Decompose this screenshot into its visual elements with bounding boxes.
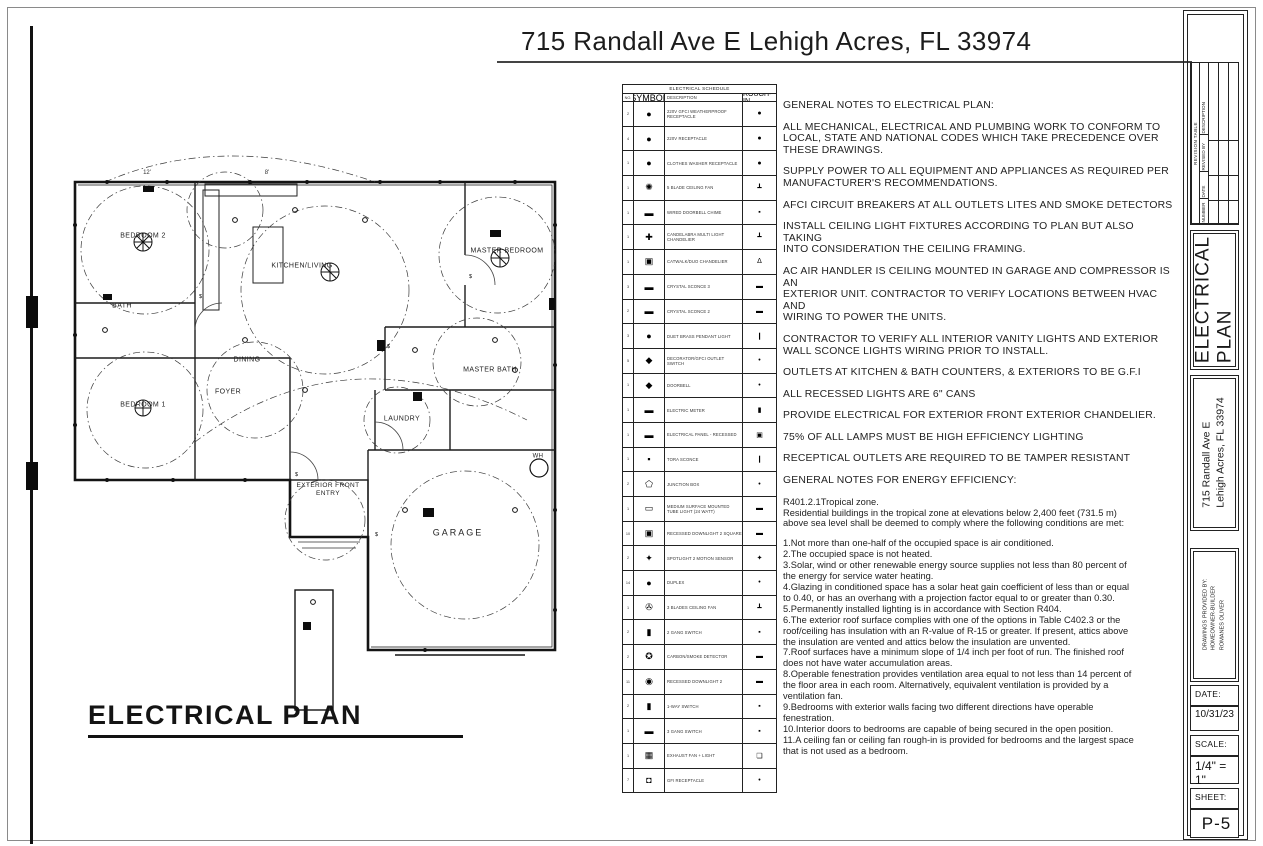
schedule-qty: 2 <box>623 102 633 126</box>
rough-in-symbol-icon: ❙ <box>742 448 776 472</box>
fixture-symbol-icon: ● <box>633 571 664 595</box>
room-label: LAUNDRY <box>384 416 420 425</box>
rough-in-symbol-icon: ▬ <box>742 497 776 521</box>
plan-heading: ELECTRICAL PLAN <box>88 700 463 738</box>
room-label: EXTERIOR FRONT ENTRY <box>296 482 359 498</box>
fixture-symbol-icon: ● <box>633 102 664 126</box>
plan-left-marker <box>26 296 38 328</box>
fixture-symbol-icon: ✦ <box>633 546 664 570</box>
schedule-col-rough: ROUGH-IN <box>742 94 776 101</box>
scale-label: SCALE: <box>1190 735 1239 756</box>
fixture-symbol-icon: ▬ <box>633 719 664 743</box>
provided-by: DRAWINGS PROVIDED BY: HOMEOWNER-BUILDER … <box>1190 548 1239 682</box>
energy-note-paragraph: R401.2.1Tropical zone. Residential build… <box>783 497 1175 530</box>
energy-note-paragraph: 1.Not more than one-half of the occupied… <box>783 538 1175 756</box>
schedule-qty: 1 <box>623 423 633 447</box>
fixture-description: SPOTLIGHT 2 MOTION SENSOR <box>664 546 742 570</box>
fixture-symbol-icon: ◘ <box>633 769 664 793</box>
rough-in-symbol-icon: ▮ <box>742 398 776 422</box>
rough-in-symbol-icon: ✦ <box>742 546 776 570</box>
schedule-row: 1 ▬ ELECTRIC METER ▮ <box>623 398 776 423</box>
rough-in-symbol-icon: ▪ <box>742 620 776 644</box>
fixture-description: 2 GANG SWITCH <box>664 620 742 644</box>
fixture-symbol-icon: ● <box>633 127 664 151</box>
room-label: MASTER BATH <box>463 367 517 376</box>
room-label: BEDROOM 2 <box>120 233 166 242</box>
sheet-number-label: SHEET: <box>1190 788 1239 809</box>
schedule-row: 1 ✇ 3 BLADES CEILING FAN ┻ <box>623 596 776 621</box>
dimension-label: 8' <box>265 170 269 176</box>
fixture-symbol-icon: ▪ <box>633 448 664 472</box>
fixture-symbol-icon: ▦ <box>633 744 664 768</box>
fixture-description: JUNCTION BOX <box>664 472 742 496</box>
schedule-row: 2 ✦ SPOTLIGHT 2 MOTION SENSOR ✦ <box>623 546 776 571</box>
rough-in-symbol-icon: ▬ <box>742 300 776 324</box>
schedule-col-desc: DESCRIPTION <box>664 94 742 101</box>
rough-in-symbol-icon: ❏ <box>742 744 776 768</box>
note-paragraph: AFCI CIRCUIT BREAKERS AT ALL OUTLETS LIT… <box>783 200 1175 212</box>
fixture-description: 220V GFCI WEATHERPROOF RECEPTACLE <box>664 102 742 126</box>
fixture-description: WIRED DOORBELL CHIME <box>664 201 742 225</box>
rough-in-symbol-icon: • <box>742 472 776 496</box>
fixture-description: CRYSTAL SCONCE 2 <box>664 300 742 324</box>
svg-text:$: $ <box>387 344 390 350</box>
schedule-qty: 3 <box>623 324 633 348</box>
schedule-row: 2 ▮ 2 GANG SWITCH ▪ <box>623 620 776 645</box>
revision-col-number: NUMBER <box>1200 199 1208 224</box>
schedule-row: 14 ● DUPLEX • <box>623 571 776 596</box>
schedule-row: 1 ▪ TORA SCONCE ❙ <box>623 448 776 473</box>
schedule-qty: 2 <box>623 300 633 324</box>
schedule-qty: 1 <box>623 398 633 422</box>
note-paragraph: OUTLETS AT KITCHEN & BATH COUNTERS, & EX… <box>783 367 1175 379</box>
fixture-symbol-icon: ▮ <box>633 620 664 644</box>
fixture-symbol-icon: ▬ <box>633 201 664 225</box>
note-paragraph: SUPPLY POWER TO ALL EQUIPMENT AND APPLIA… <box>783 166 1175 189</box>
schedule-qty: 2 <box>623 546 633 570</box>
note-paragraph: AC AIR HANDLER IS CEILING MOUNTED IN GAR… <box>783 266 1175 324</box>
schedule-qty: 1 <box>623 744 633 768</box>
fixture-symbol-icon: ⬠ <box>633 472 664 496</box>
fixture-description: ELECTRICAL PANEL - RECESSED <box>664 423 742 447</box>
room-label: BATH <box>112 303 132 312</box>
schedule-row: 3 ▬ CRYSTAL SCONCE 3 ▬ <box>623 275 776 300</box>
svg-text:$: $ <box>375 532 378 538</box>
room-label: KITCHEN/LIVING <box>271 263 332 272</box>
schedule-qty: 2 <box>623 472 633 496</box>
sheet-name: ELECTRICAL PLAN <box>1190 230 1239 370</box>
sheet-number: P-5 <box>1190 809 1239 838</box>
rough-in-symbol-icon: ▬ <box>742 645 776 669</box>
rough-in-symbol-icon: ▪ <box>742 719 776 743</box>
schedule-row: 1 ▣ CATWALK/DUO CHANDELIER Δ <box>623 250 776 275</box>
schedule-title: ELECTRICAL SCHEDULE <box>623 85 776 94</box>
note-paragraph: INSTALL CEILING LIGHT FIXTURES ACCORDING… <box>783 221 1175 256</box>
rough-in-symbol-icon: • <box>742 769 776 793</box>
schedule-qty: 1 <box>623 176 633 200</box>
fixture-description: RECESSED DOWNLIGHT 2 <box>664 670 742 694</box>
schedule-row: 5 ◆ DECORATOR/GFCI OUTLET SWITCH • <box>623 349 776 374</box>
schedule-row: 1 ▭ MEDIUM SURFACE MOUNTED TUBE LIGHT (2… <box>623 497 776 522</box>
schedule-row: 3 ● DUET BRASS PENDANT LIGHT ❙ <box>623 324 776 349</box>
fixture-description: DUET BRASS PENDANT LIGHT <box>664 324 742 348</box>
revision-table-title: REVISION TABLE <box>1192 64 1200 224</box>
fixture-description: GFI RECEPTACLE <box>664 769 742 793</box>
fixture-symbol-icon: ▮ <box>633 695 664 719</box>
fixture-description: CARBON/SMOKE DETECTOR <box>664 645 742 669</box>
sheet-left-rule <box>30 26 33 844</box>
fixture-description: DECORATOR/GFCI OUTLET SWITCH <box>664 349 742 373</box>
electrical-schedule: ELECTRICAL SCHEDULE NO. SYMBOL DESCRIPTI… <box>622 84 777 793</box>
schedule-row: 11 ◉ RECESSED DOWNLIGHT 2 ▬ <box>623 670 776 695</box>
plan-left-marker <box>26 462 38 490</box>
fixture-symbol-icon: ▣ <box>633 522 664 546</box>
note-paragraph: PROVIDE ELECTRICAL FOR EXTERIOR FRONT EX… <box>783 410 1175 422</box>
schedule-header: NO. SYMBOL DESCRIPTION ROUGH-IN <box>623 94 776 102</box>
fixture-symbol-icon: ✺ <box>633 176 664 200</box>
schedule-row: 4 ● 220V RECEPTACLE ● <box>623 127 776 152</box>
schedule-col-qty: NO. <box>623 94 633 101</box>
fixture-description: EXHAUST FAN + LIGHT <box>664 744 742 768</box>
schedule-row: 7 ◘ GFI RECEPTACLE • <box>623 769 776 793</box>
page-title: 715 Randall Ave E Lehigh Acres, FL 33974 <box>497 26 1192 63</box>
schedule-row: 2 ● 220V GFCI WEATHERPROOF RECEPTACLE ● <box>623 102 776 127</box>
rough-in-symbol-icon: ● <box>742 151 776 175</box>
schedule-qty: 10 <box>623 522 633 546</box>
schedule-row: 1 ✚ CANDELABRA MULTI LIGHT CHANDELIER ┻ <box>623 225 776 250</box>
dimension-label: 12' <box>143 170 151 176</box>
fixture-description: 3 GANG SWITCH <box>664 719 742 743</box>
fixture-symbol-icon: ◉ <box>633 670 664 694</box>
schedule-qty: 1 <box>623 596 633 620</box>
fixture-description: RECESSED DOWNLIGHT 2 SQUARE <box>664 522 742 546</box>
rough-in-symbol-icon: ▪ <box>742 695 776 719</box>
note-paragraph: 75% OF ALL LAMPS MUST BE HIGH EFFICIENCY… <box>783 432 1175 444</box>
floor-plan: $$ $$$ BEDROOM 2 BATH KITCHEN/LIVING MAS… <box>45 90 585 730</box>
schedule-qty: 2 <box>623 620 633 644</box>
rough-in-symbol-icon: • <box>742 571 776 595</box>
room-label: DINING <box>234 357 261 366</box>
schedule-qty: 14 <box>623 571 633 595</box>
schedule-row: 1 ✺ 5 BLADE CEILING FAN ┻ <box>623 176 776 201</box>
fixture-description: 3 BLADES CEILING FAN <box>664 596 742 620</box>
fixture-description: CATWALK/DUO CHANDELIER <box>664 250 742 274</box>
revision-table: REVISION TABLE NUMBER DATE REVISED BY DE… <box>1190 62 1239 225</box>
fixture-description: TORA SCONCE <box>664 448 742 472</box>
schedule-qty: 1 <box>623 250 633 274</box>
schedule-qty: 1 <box>623 225 633 249</box>
schedule-qty: 1 <box>623 151 633 175</box>
rough-in-symbol-icon: • <box>742 349 776 373</box>
room-label: FOYER <box>215 389 241 398</box>
note-paragraph: ALL RECESSED LIGHTS ARE 6" CANS <box>783 389 1175 401</box>
schedule-row: 2 ⬠ JUNCTION BOX • <box>623 472 776 497</box>
rough-in-symbol-icon: ┻ <box>742 225 776 249</box>
rough-in-symbol-icon: ❙ <box>742 324 776 348</box>
fixture-symbol-icon: ✪ <box>633 645 664 669</box>
rough-in-symbol-icon: ● <box>742 127 776 151</box>
room-label: MASTER BEDROOM <box>471 248 544 257</box>
schedule-row: 1 ▬ ELECTRICAL PANEL - RECESSED ▣ <box>623 423 776 448</box>
fixture-description: DUPLEX <box>664 571 742 595</box>
fixture-symbol-icon: ● <box>633 324 664 348</box>
fixture-symbol-icon: ✇ <box>633 596 664 620</box>
fixture-symbol-icon: ▬ <box>633 398 664 422</box>
schedule-qty: 2 <box>623 645 633 669</box>
rough-in-symbol-icon: ▣ <box>742 423 776 447</box>
note-paragraph: CONTRACTOR TO VERIFY ALL INTERIOR VANITY… <box>783 334 1175 357</box>
revision-table-headers: NUMBER DATE REVISED BY DESCRIPTION <box>1200 64 1209 224</box>
schedule-row: 1 ▬ WIRED DOORBELL CHIME ▪ <box>623 201 776 226</box>
rough-in-symbol-icon: ▬ <box>742 670 776 694</box>
schedule-qty: 11 <box>623 670 633 694</box>
fixture-description: CLOTHES WASHER RECEPTACLE <box>664 151 742 175</box>
schedule-row: 1 ▬ 3 GANG SWITCH ▪ <box>623 719 776 744</box>
scale-value: 1/4" = 1" <box>1190 756 1239 784</box>
schedule-row: 2 ▬ CRYSTAL SCONCE 2 ▬ <box>623 300 776 325</box>
sheet-address: 715 Randall Ave E Lehigh Acres, FL 33974 <box>1190 375 1239 531</box>
note-paragraph: GENERAL NOTES TO ELECTRICAL PLAN: <box>783 100 1175 112</box>
fixture-description: CRYSTAL SCONCE 3 <box>664 275 742 299</box>
fixture-description: DOORBELL <box>664 374 742 398</box>
fixture-symbol-icon: ▬ <box>633 275 664 299</box>
schedule-col-symbol: SYMBOL <box>633 94 664 101</box>
fixture-symbol-icon: ● <box>633 151 664 175</box>
fixture-symbol-icon: ◆ <box>633 374 664 398</box>
rough-in-symbol-icon: ┻ <box>742 176 776 200</box>
rough-in-symbol-icon: Δ <box>742 250 776 274</box>
schedule-qty: 5 <box>623 349 633 373</box>
note-paragraph: ALL MECHANICAL, ELECTRICAL AND PLUMBING … <box>783 122 1175 157</box>
schedule-qty: 1 <box>623 497 633 521</box>
room-label: GARAGE <box>433 527 484 538</box>
schedule-qty: 2 <box>623 695 633 719</box>
date-label: DATE: <box>1190 685 1239 706</box>
fixture-description: CANDELABRA MULTI LIGHT CHANDELIER <box>664 225 742 249</box>
schedule-row: 2 ▮ 1-WAY SWITCH ▪ <box>623 695 776 720</box>
fixture-description: ELECTRIC METER <box>664 398 742 422</box>
schedule-row: 1 ● CLOTHES WASHER RECEPTACLE ● <box>623 151 776 176</box>
schedule-qty: 1 <box>623 448 633 472</box>
schedule-row: 1 ◆ DOORBELL • <box>623 374 776 399</box>
room-label: BEDROOM 1 <box>120 402 166 411</box>
fixture-symbol-icon: ▬ <box>633 300 664 324</box>
svg-text:$: $ <box>469 274 472 280</box>
fixture-symbol-icon: ✚ <box>633 225 664 249</box>
schedule-qty: 3 <box>623 275 633 299</box>
fixture-description: 220V RECEPTACLE <box>664 127 742 151</box>
rough-in-symbol-icon: ● <box>742 102 776 126</box>
room-label: WH <box>533 453 544 461</box>
fixture-description: 5 BLADE CEILING FAN <box>664 176 742 200</box>
schedule-qty: 4 <box>623 127 633 151</box>
schedule-qty: 1 <box>623 374 633 398</box>
schedule-qty: 7 <box>623 769 633 793</box>
general-notes: GENERAL NOTES TO ELECTRICAL PLAN: ALL ME… <box>783 100 1175 766</box>
revision-col-description: DESCRIPTION <box>1200 64 1208 135</box>
rough-in-symbol-icon: ▪ <box>742 201 776 225</box>
rough-in-symbol-icon: ▬ <box>742 522 776 546</box>
note-paragraph: GENERAL NOTES FOR ENERGY EFFICIENCY: <box>783 475 1175 487</box>
note-paragraph: RECEPTICAL OUTLETS ARE REQUIRED TO BE TA… <box>783 453 1175 465</box>
fixture-description: 1-WAY SWITCH <box>664 695 742 719</box>
svg-text:$: $ <box>295 472 298 478</box>
rough-in-symbol-icon: ┻ <box>742 596 776 620</box>
schedule-qty: 1 <box>623 201 633 225</box>
fixture-symbol-icon: ◆ <box>633 349 664 373</box>
revision-col-date: DATE <box>1200 172 1208 199</box>
schedule-row: 2 ✪ CARBON/SMOKE DETECTOR ▬ <box>623 645 776 670</box>
svg-text:$: $ <box>199 294 202 300</box>
rough-in-symbol-icon: • <box>742 374 776 398</box>
revision-col-revised-by: REVISED BY <box>1200 135 1208 172</box>
fixture-description: MEDIUM SURFACE MOUNTED TUBE LIGHT (24 WA… <box>664 497 742 521</box>
schedule-qty: 1 <box>623 719 633 743</box>
schedule-row: 10 ▣ RECESSED DOWNLIGHT 2 SQUARE ▬ <box>623 522 776 547</box>
schedule-row: 1 ▦ EXHAUST FAN + LIGHT ❏ <box>623 744 776 769</box>
rough-in-symbol-icon: ▬ <box>742 275 776 299</box>
fixture-symbol-icon: ▭ <box>633 497 664 521</box>
fixture-symbol-icon: ▬ <box>633 423 664 447</box>
date-value: 10/31/23 <box>1190 706 1239 731</box>
fixture-symbol-icon: ▣ <box>633 250 664 274</box>
